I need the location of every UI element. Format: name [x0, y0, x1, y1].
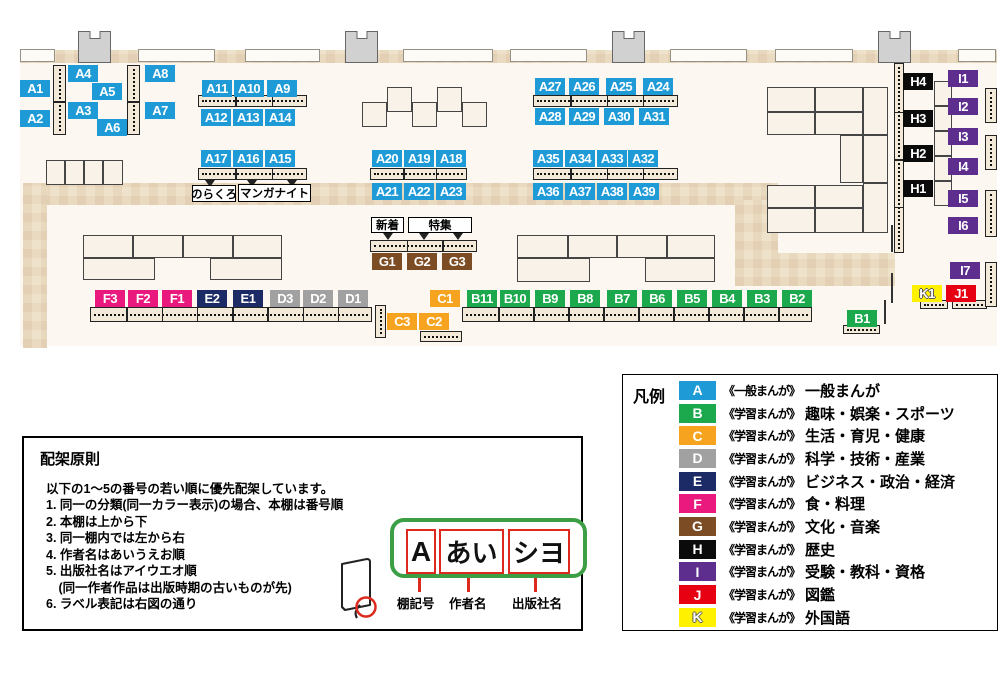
shelf-divider — [162, 308, 164, 321]
pointer-line — [418, 578, 421, 592]
shelf-label-a8: A8 — [145, 65, 175, 82]
shelf-divider — [403, 169, 405, 179]
shelf-label-a6: A6 — [97, 119, 127, 136]
pointer-triangle — [419, 233, 429, 240]
shelf-label-i7: I7 — [950, 262, 980, 279]
shelf-label-k1: K1 — [912, 285, 942, 302]
shelf-label-a27: A27 — [535, 78, 565, 95]
shelf-divider — [272, 96, 274, 106]
bookshelf-row — [370, 168, 467, 180]
table-block — [617, 235, 667, 258]
bookshelf-row — [462, 307, 812, 322]
shelf-label-a34: A34 — [565, 150, 595, 167]
shelf-divider — [743, 308, 745, 321]
shelf-label-a26: A26 — [569, 78, 599, 95]
shelf-divider — [54, 101, 65, 103]
pointer-line — [534, 578, 537, 592]
shelf-divider — [607, 96, 609, 106]
table-block — [84, 160, 103, 185]
wall-window — [403, 49, 493, 62]
shelf-divider — [267, 308, 269, 321]
bookshelf-column — [375, 305, 386, 338]
shelf-label-i4: I4 — [948, 158, 978, 175]
wall-window — [775, 49, 853, 62]
shelf-divider — [895, 159, 903, 161]
shelf-label-c2: C2 — [419, 313, 449, 330]
legend-type-label: 《学習まんが》 — [723, 518, 800, 535]
legend-type-label: 《学習まんが》 — [723, 495, 800, 512]
bookshelf-row — [90, 307, 372, 322]
principles-item-4: 4. 作者名はあいうえお順 — [46, 547, 343, 564]
shelf-divider — [708, 308, 710, 321]
table-block — [462, 102, 487, 127]
shelf-label-a16: A16 — [233, 150, 263, 167]
table-block — [767, 112, 815, 135]
principles-intro: 以下の1〜5の番号の若い順に優先配架しています。 — [46, 478, 333, 497]
shelf-divider — [568, 308, 570, 321]
note-box: のらくろ — [192, 185, 236, 202]
principles-item-6: 6. ラベル表記は右図の通り — [46, 596, 343, 613]
bookshelf-row — [198, 168, 307, 180]
wall-window — [510, 49, 587, 62]
shelf-label-b1: B1 — [847, 310, 877, 327]
shelf-label-f1: F1 — [162, 290, 192, 307]
table-block — [667, 235, 715, 258]
table-block — [767, 208, 815, 233]
table-block — [362, 102, 387, 127]
shelf-label-a33: A33 — [597, 150, 627, 167]
shelf-label-a23: A23 — [436, 183, 466, 200]
shelf-label-a19: A19 — [404, 150, 434, 167]
wall-band — [735, 253, 895, 286]
shelf-divider — [603, 308, 605, 321]
bookshelf-column — [985, 135, 997, 170]
pillar — [612, 31, 645, 63]
note-box: 新着 — [371, 217, 404, 233]
shelf-label-c3: C3 — [387, 313, 417, 330]
caption-author: 作者名 — [449, 593, 487, 612]
wall-window — [245, 49, 320, 62]
shelf-label-b7: B7 — [607, 290, 637, 307]
note-box: 特集 — [408, 217, 472, 233]
shelving-principles-box: 配架原則 以下の1〜5の番号の若い順に優先配架しています。 1. 同一の分類(同… — [22, 436, 583, 631]
shelf-divider — [778, 308, 780, 321]
shelf-divider — [643, 96, 645, 106]
label-field-publisher: シヨ — [508, 529, 570, 574]
shelf-divider — [338, 308, 340, 321]
legend-type-label: 《学習まんが》 — [723, 541, 800, 558]
shelf-label-h3: H3 — [903, 110, 933, 127]
legend-row-j: J《学習まんが》図鑑 — [679, 583, 955, 606]
shelf-label-a7: A7 — [145, 102, 175, 119]
shelf-label-a39: A39 — [629, 183, 659, 200]
wall-line — [884, 300, 886, 324]
table-block — [387, 87, 412, 112]
legend-category-label: 受験・教科・資格 — [805, 561, 925, 582]
wall-window — [20, 49, 55, 62]
shelf-divider — [533, 308, 535, 321]
wall-window — [138, 49, 215, 62]
table-block — [815, 208, 863, 233]
bookshelf-column — [53, 65, 66, 135]
legend-key-swatch: J — [679, 585, 716, 604]
legend-row-e: E《学習まんが》ビジネス・政治・経済 — [679, 470, 955, 493]
legend-row-c: C《学習まんが》生活・育児・健康 — [679, 424, 955, 447]
shelf-label-a18: A18 — [436, 150, 466, 167]
bookshelf-row — [370, 240, 477, 252]
wall-window — [958, 49, 996, 62]
table-block — [815, 87, 863, 112]
legend-key-swatch: B — [679, 404, 716, 423]
legend-type-label: 《学習まんが》 — [723, 427, 800, 444]
principles-list: 1. 同一の分類(同一カラー表示)の場合、本棚は番号順2. 本棚は上から下3. … — [46, 497, 343, 613]
shelf-divider — [436, 169, 438, 179]
shelf-label-b11: B11 — [467, 290, 497, 307]
shelf-divider — [235, 169, 237, 179]
shelf-label-i6: I6 — [948, 217, 978, 234]
pointer-triangle — [383, 233, 393, 240]
table-block — [103, 160, 123, 185]
caption-publisher: 出版社名 — [512, 593, 562, 612]
shelf-label-a30: A30 — [604, 108, 634, 125]
table-block — [815, 112, 863, 135]
note-box: マンガナイト — [238, 184, 311, 202]
shelf-divider — [407, 241, 409, 251]
legend-key-swatch: G — [679, 517, 716, 536]
shelf-label-a11: A11 — [202, 80, 232, 97]
legend-row-h: H《学習まんが》歴史 — [679, 538, 955, 561]
table-block — [645, 258, 715, 282]
table-block — [517, 235, 568, 258]
legend-title: 凡例 — [633, 383, 665, 407]
shelf-divider — [643, 169, 645, 179]
legend-key-swatch: H — [679, 540, 716, 559]
principles-item-5: 5. 出版社名はアイウエオ順 (同一作者作品は出版時期の古いものが先) — [46, 563, 343, 596]
shelf-label-j1: J1 — [946, 285, 976, 302]
wall-line — [891, 225, 893, 252]
shelf-label-h2: H2 — [903, 145, 933, 162]
table-block — [815, 185, 863, 208]
shelf-label-b8: B8 — [570, 290, 600, 307]
bookshelf-column — [985, 190, 997, 237]
legend-key-swatch: C — [679, 426, 716, 445]
shelf-divider — [235, 96, 237, 106]
table-block — [210, 258, 282, 280]
legend-type-label: 《一般まんが》 — [723, 382, 800, 399]
shelf-divider — [895, 112, 903, 114]
shelf-label-b9: B9 — [535, 290, 565, 307]
shelf-label-g3: G3 — [442, 253, 472, 270]
legend-box: 凡例 A《一般まんが》一般まんがB《学習まんが》趣味・娯楽・スポーツC《学習まん… — [622, 374, 998, 631]
table-block — [863, 135, 888, 183]
principles-item-2: 2. 本棚は上から下 — [46, 514, 343, 531]
shelf-label-a29: A29 — [569, 108, 599, 125]
shelf-label-e2: E2 — [197, 290, 227, 307]
table-block — [568, 235, 617, 258]
shelf-label-b10: B10 — [500, 290, 530, 307]
shelf-divider — [895, 207, 903, 209]
legend-category-label: 歴史 — [805, 539, 835, 560]
shelf-label-b4: B4 — [712, 290, 742, 307]
shelf-label-a31: A31 — [639, 108, 669, 125]
wall-band — [23, 183, 47, 348]
shelf-label-i2: I2 — [948, 98, 978, 115]
shelf-label-a24: A24 — [643, 78, 673, 95]
bookshelf-column — [127, 65, 140, 135]
shelf-label-a9: A9 — [267, 80, 297, 97]
legend-type-label: 《学習まんが》 — [723, 450, 800, 467]
shelf-label-c1: C1 — [430, 290, 460, 307]
legend-type-label: 《学習まんが》 — [723, 586, 800, 603]
bookshelf-column — [985, 262, 997, 307]
bookshelf-row — [420, 331, 462, 342]
shelf-label-a25: A25 — [606, 78, 636, 95]
legend-row-a: A《一般まんが》一般まんが — [679, 379, 955, 402]
legend-category-label: 食・料理 — [805, 493, 865, 514]
shelf-label-b6: B6 — [642, 290, 672, 307]
shelf-divider — [272, 169, 274, 179]
legend-category-label: 外国語 — [805, 607, 850, 628]
legend-type-label: 《学習まんが》 — [723, 609, 800, 626]
shelf-divider — [638, 308, 640, 321]
legend-row-k: K《学習まんが》外国語 — [679, 606, 955, 629]
table-block — [517, 258, 590, 282]
shelf-label-a37: A37 — [565, 183, 595, 200]
shelf-label-a2: A2 — [20, 110, 50, 127]
library-floor-map: A1A2A4A5A3A6A8A7A11A10A9A12A13A14A17A16A… — [0, 0, 1000, 700]
shelf-label-b3: B3 — [747, 290, 777, 307]
shelf-label-a3: A3 — [68, 102, 98, 119]
shelf-label-b2: B2 — [782, 290, 812, 307]
bookshelf-column — [985, 88, 997, 123]
table-block — [83, 258, 155, 280]
legend-type-label: 《学習まんが》 — [723, 473, 800, 490]
pointer-line — [467, 578, 470, 592]
bookshelf-row — [533, 168, 678, 180]
shelf-label-g1: G1 — [372, 253, 402, 270]
shelf-label-a36: A36 — [533, 183, 563, 200]
legend-category-label: 生活・育児・健康 — [805, 425, 925, 446]
pillar — [345, 31, 378, 63]
principles-title: 配架原則 — [40, 448, 100, 469]
shelf-label-e1: E1 — [233, 290, 263, 307]
legend-key-swatch: I — [679, 562, 716, 581]
shelf-label-a38: A38 — [597, 183, 627, 200]
shelf-divider — [607, 169, 609, 179]
table-block — [863, 183, 888, 233]
shelf-label-a28: A28 — [535, 108, 565, 125]
shelf-divider — [232, 308, 234, 321]
shelf-label-i1: I1 — [948, 70, 978, 87]
legend-key-swatch: A — [679, 381, 716, 400]
shelf-label-a14: A14 — [265, 109, 295, 126]
wall-window — [670, 49, 747, 62]
legend-key-swatch: K — [679, 608, 716, 627]
table-block — [83, 235, 133, 258]
shelf-label-d3: D3 — [270, 290, 300, 307]
pointer-triangle — [453, 233, 463, 240]
table-block — [767, 185, 815, 208]
legend-key-swatch: E — [679, 472, 716, 491]
principles-item-3: 3. 同一棚内では左から右 — [46, 530, 343, 547]
table-block — [412, 102, 437, 127]
shelf-label-a22: A22 — [404, 183, 434, 200]
legend-category-label: 趣味・娯楽・スポーツ — [805, 403, 955, 424]
legend-row-i: I《学習まんが》受験・教科・資格 — [679, 561, 955, 584]
legend-category-label: 図鑑 — [805, 584, 835, 605]
pillar — [78, 31, 111, 63]
legend-category-label: 科学・技術・産業 — [805, 448, 925, 469]
shelf-label-a10: A10 — [234, 80, 264, 97]
shelf-divider — [673, 308, 675, 321]
table-block — [863, 87, 888, 135]
shelf-label-a1: A1 — [20, 80, 50, 97]
legend-category-label: 一般まんが — [805, 380, 880, 401]
legend-category-label: 文化・音楽 — [805, 516, 880, 537]
shelf-label-b5: B5 — [677, 290, 707, 307]
label-field-shelf-code: A — [406, 529, 436, 574]
table-block — [183, 235, 233, 258]
shelf-divider — [570, 169, 572, 179]
label-example-frame: A あい シヨ — [390, 518, 587, 578]
shelf-label-i5: I5 — [948, 190, 978, 207]
pillar — [878, 31, 911, 63]
shelf-divider — [303, 308, 305, 321]
legend-type-label: 《学習まんが》 — [723, 405, 800, 422]
shelf-divider — [570, 96, 572, 106]
shelf-divider — [126, 308, 128, 321]
shelf-label-a4: A4 — [68, 65, 98, 82]
shelf-divider — [197, 308, 199, 321]
table-block — [133, 235, 183, 258]
legend-category-label: ビジネス・政治・経済 — [805, 471, 955, 492]
caption-shelf-code: 棚記号 — [397, 593, 435, 612]
legend-row-g: G《学習まんが》文化・音楽 — [679, 515, 955, 538]
table-block — [46, 160, 65, 185]
legend-type-label: 《学習まんが》 — [723, 563, 800, 580]
shelf-label-i3: I3 — [948, 128, 978, 145]
shelf-label-d2: D2 — [303, 290, 333, 307]
table-block — [767, 87, 815, 112]
legend-row-d: D《学習まんが》科学・技術・産業 — [679, 447, 955, 470]
legend-row-b: B《学習まんが》趣味・娯楽・スポーツ — [679, 402, 955, 425]
shelf-label-a35: A35 — [533, 150, 563, 167]
label-field-author: あい — [439, 529, 504, 574]
shelf-divider — [128, 101, 139, 103]
table-block — [233, 235, 282, 258]
shelf-label-a20: A20 — [372, 150, 402, 167]
shelf-label-g2: G2 — [407, 253, 437, 270]
book-illustration — [330, 556, 384, 620]
shelf-label-a17: A17 — [201, 150, 231, 167]
shelf-label-f2: F2 — [128, 290, 158, 307]
shelf-label-h4: H4 — [903, 73, 933, 90]
shelf-label-a13: A13 — [233, 109, 263, 126]
legend-key-swatch: D — [679, 449, 716, 468]
table-block — [437, 87, 462, 112]
shelf-label-a12: A12 — [201, 109, 231, 126]
shelf-label-a21: A21 — [372, 183, 402, 200]
shelf-label-h1: H1 — [903, 180, 933, 197]
table-block — [840, 135, 863, 183]
shelf-label-f3: F3 — [95, 290, 125, 307]
principles-item-1: 1. 同一の分類(同一カラー表示)の場合、本棚は番号順 — [46, 497, 343, 514]
shelf-label-a32: A32 — [628, 150, 658, 167]
shelf-label-d1: D1 — [338, 290, 368, 307]
shelf-label-a5: A5 — [92, 83, 122, 100]
legend-rows: A《一般まんが》一般まんがB《学習まんが》趣味・娯楽・スポーツC《学習まんが》生… — [679, 379, 955, 629]
shelf-label-a15: A15 — [265, 150, 295, 167]
table-block — [65, 160, 84, 185]
legend-row-f: F《学習まんが》食・料理 — [679, 492, 955, 515]
shelf-divider — [442, 241, 444, 251]
legend-key-swatch: F — [679, 494, 716, 513]
shelf-divider — [498, 308, 500, 321]
bookshelf-row — [533, 95, 678, 107]
wall-line — [891, 273, 893, 303]
